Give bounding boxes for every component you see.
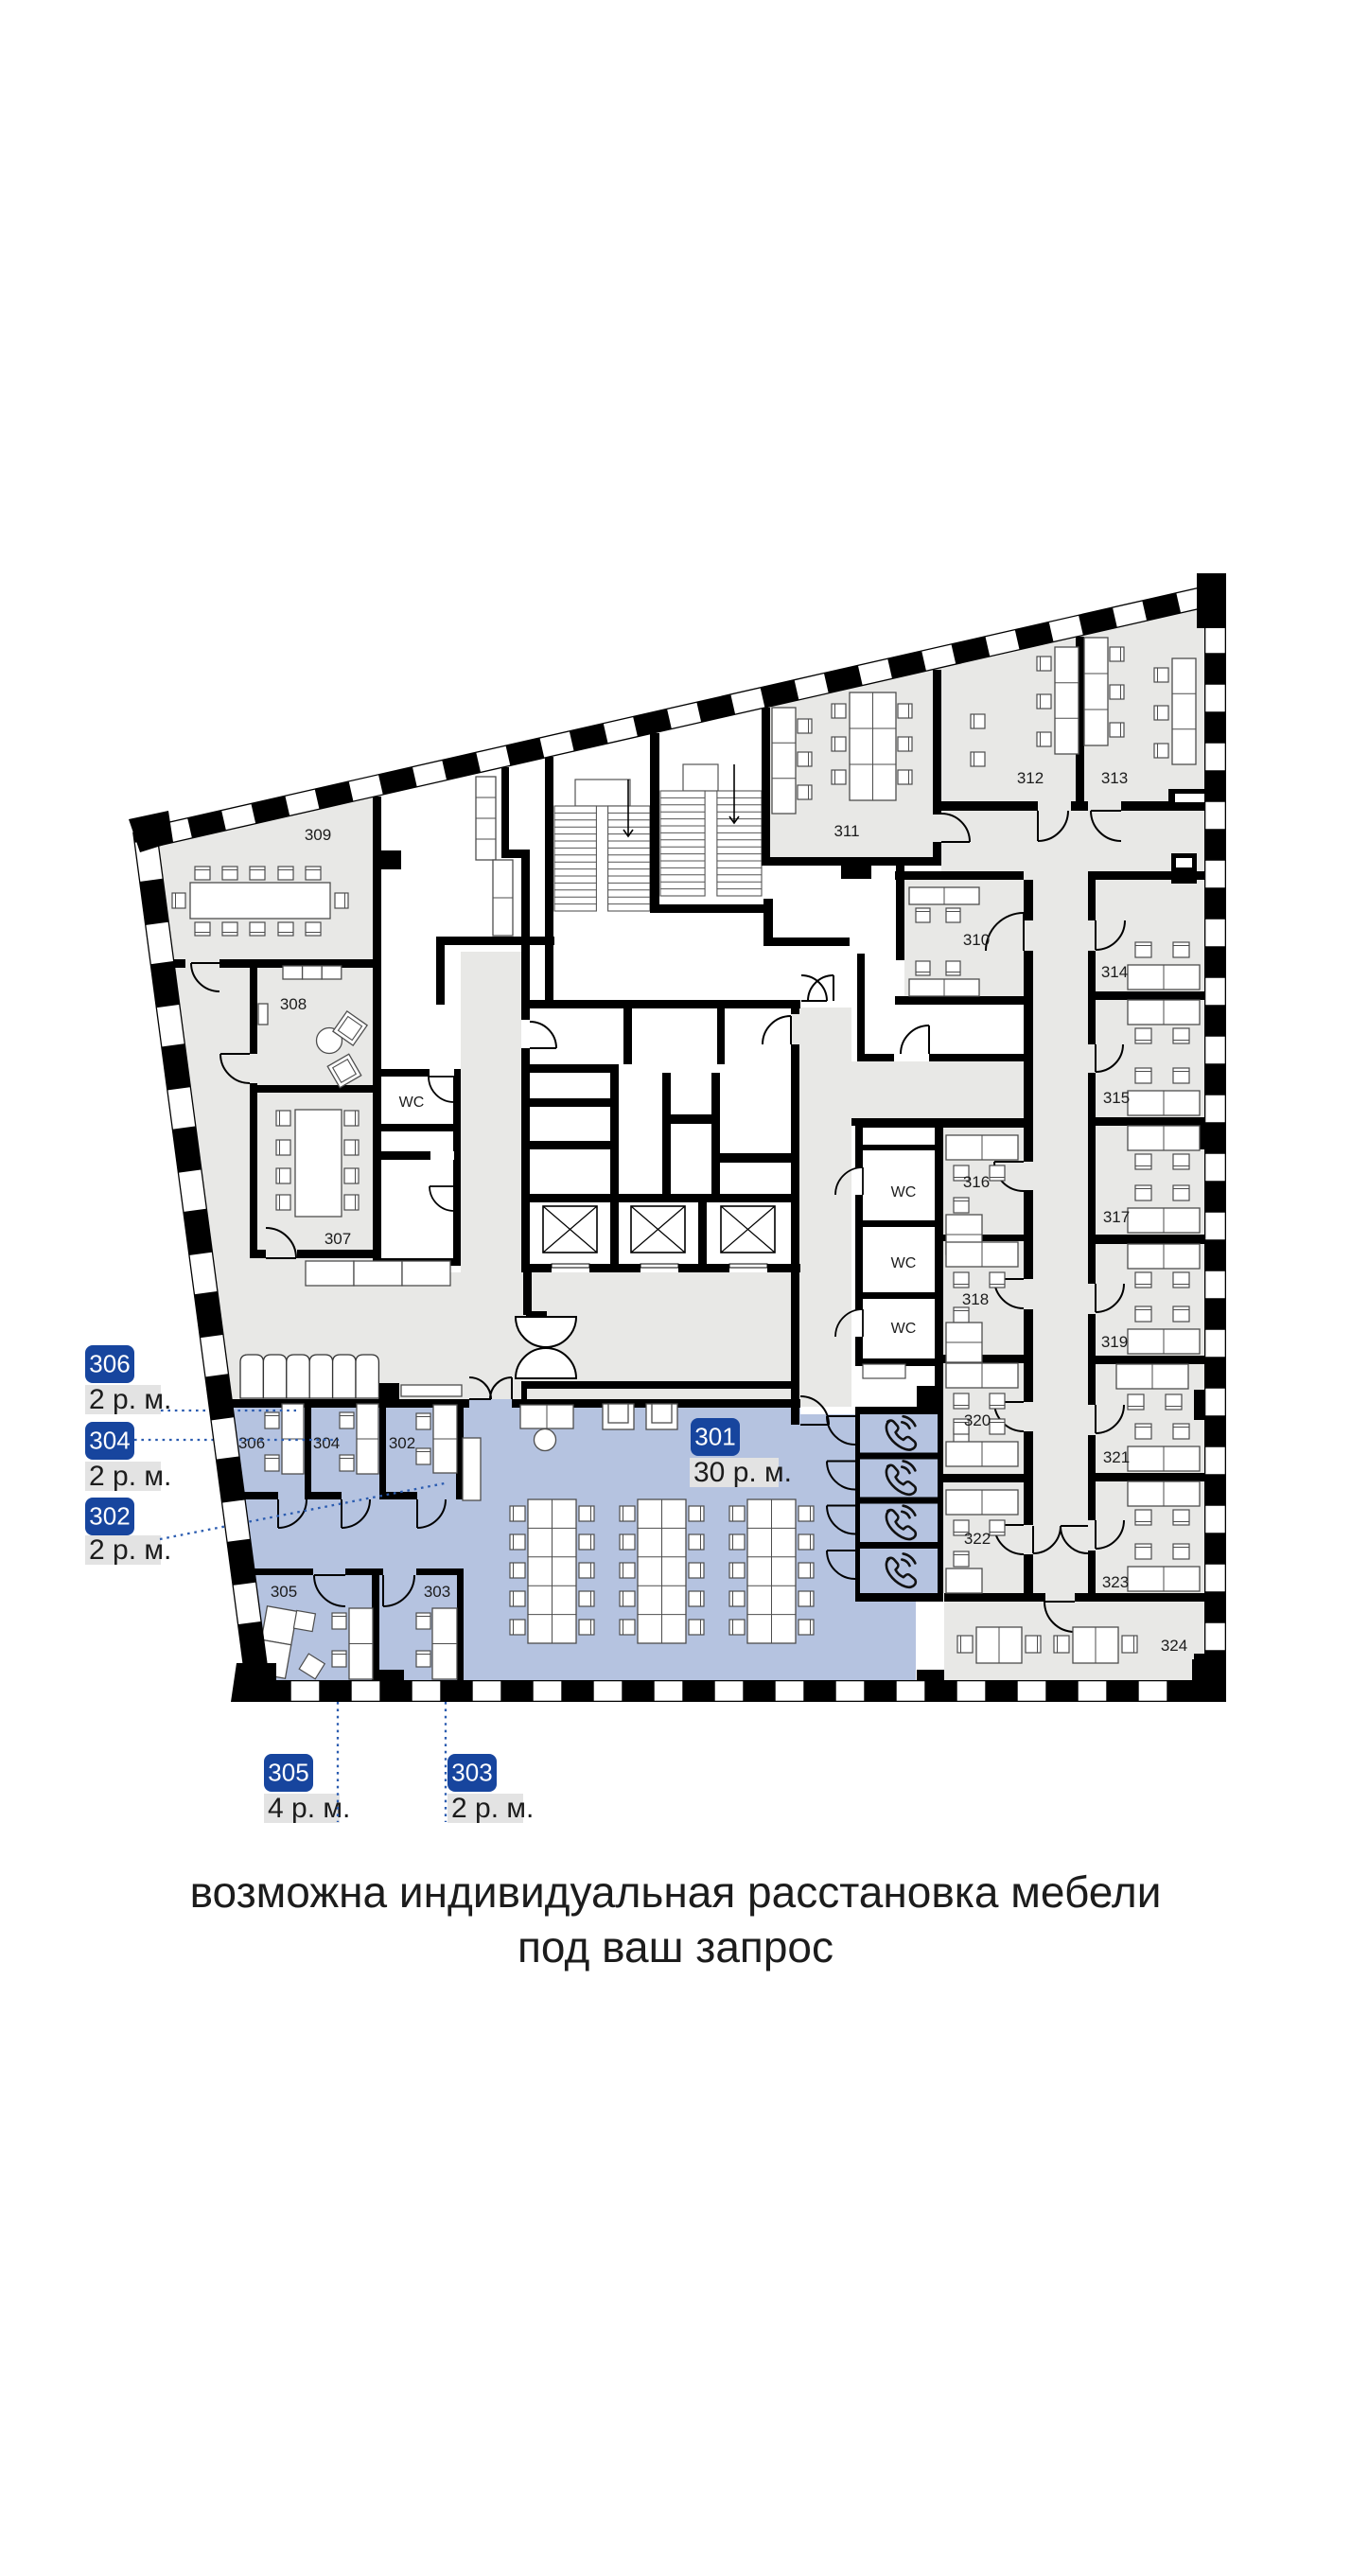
svg-text:304: 304 [89, 1427, 130, 1455]
svg-text:315: 315 [1103, 1089, 1130, 1107]
svg-text:301: 301 [694, 1423, 735, 1451]
svg-text:WC: WC [891, 1184, 917, 1200]
svg-text:324: 324 [1161, 1637, 1187, 1655]
svg-text:313: 313 [1101, 769, 1128, 787]
svg-text:317: 317 [1103, 1208, 1130, 1226]
svg-text:302: 302 [89, 1502, 130, 1531]
svg-text:WC: WC [891, 1321, 917, 1337]
svg-text:304: 304 [313, 1434, 340, 1452]
svg-text:309: 309 [305, 826, 331, 844]
svg-text:310: 310 [963, 931, 990, 949]
svg-text:306: 306 [89, 1350, 130, 1378]
svg-text:303: 303 [451, 1759, 492, 1787]
svg-text:2 р. м.: 2 р. м. [89, 1534, 171, 1566]
svg-text:30 р. м.: 30 р. м. [693, 1457, 792, 1488]
svg-text:308: 308 [280, 995, 307, 1013]
svg-text:WC: WC [399, 1095, 425, 1111]
svg-text:311: 311 [833, 822, 859, 840]
svg-text:305: 305 [271, 1583, 297, 1601]
svg-text:322: 322 [964, 1530, 991, 1548]
svg-text:306: 306 [238, 1434, 265, 1452]
svg-text:312: 312 [1017, 769, 1044, 787]
svg-text:под ваш запрос: под ваш запрос [518, 1922, 833, 1971]
svg-text:320: 320 [964, 1411, 991, 1429]
svg-text:305: 305 [268, 1759, 308, 1787]
svg-text:307: 307 [325, 1230, 351, 1248]
svg-text:319: 319 [1101, 1333, 1128, 1351]
svg-text:2 р. м.: 2 р. м. [89, 1461, 171, 1492]
svg-text:321: 321 [1103, 1448, 1130, 1466]
svg-text:302: 302 [389, 1434, 415, 1452]
svg-text:314: 314 [1101, 963, 1128, 981]
svg-text:2 р. м.: 2 р. м. [451, 1793, 534, 1824]
svg-text:316: 316 [963, 1173, 990, 1191]
svg-text:303: 303 [424, 1583, 450, 1601]
svg-text:318: 318 [962, 1290, 989, 1308]
svg-text:WC: WC [891, 1255, 917, 1271]
svg-text:323: 323 [1102, 1573, 1129, 1591]
svg-text:возможна индивидуальная расста: возможна индивидуальная расстановка мебе… [190, 1867, 1162, 1917]
svg-text:2 р. м.: 2 р. м. [89, 1384, 171, 1415]
